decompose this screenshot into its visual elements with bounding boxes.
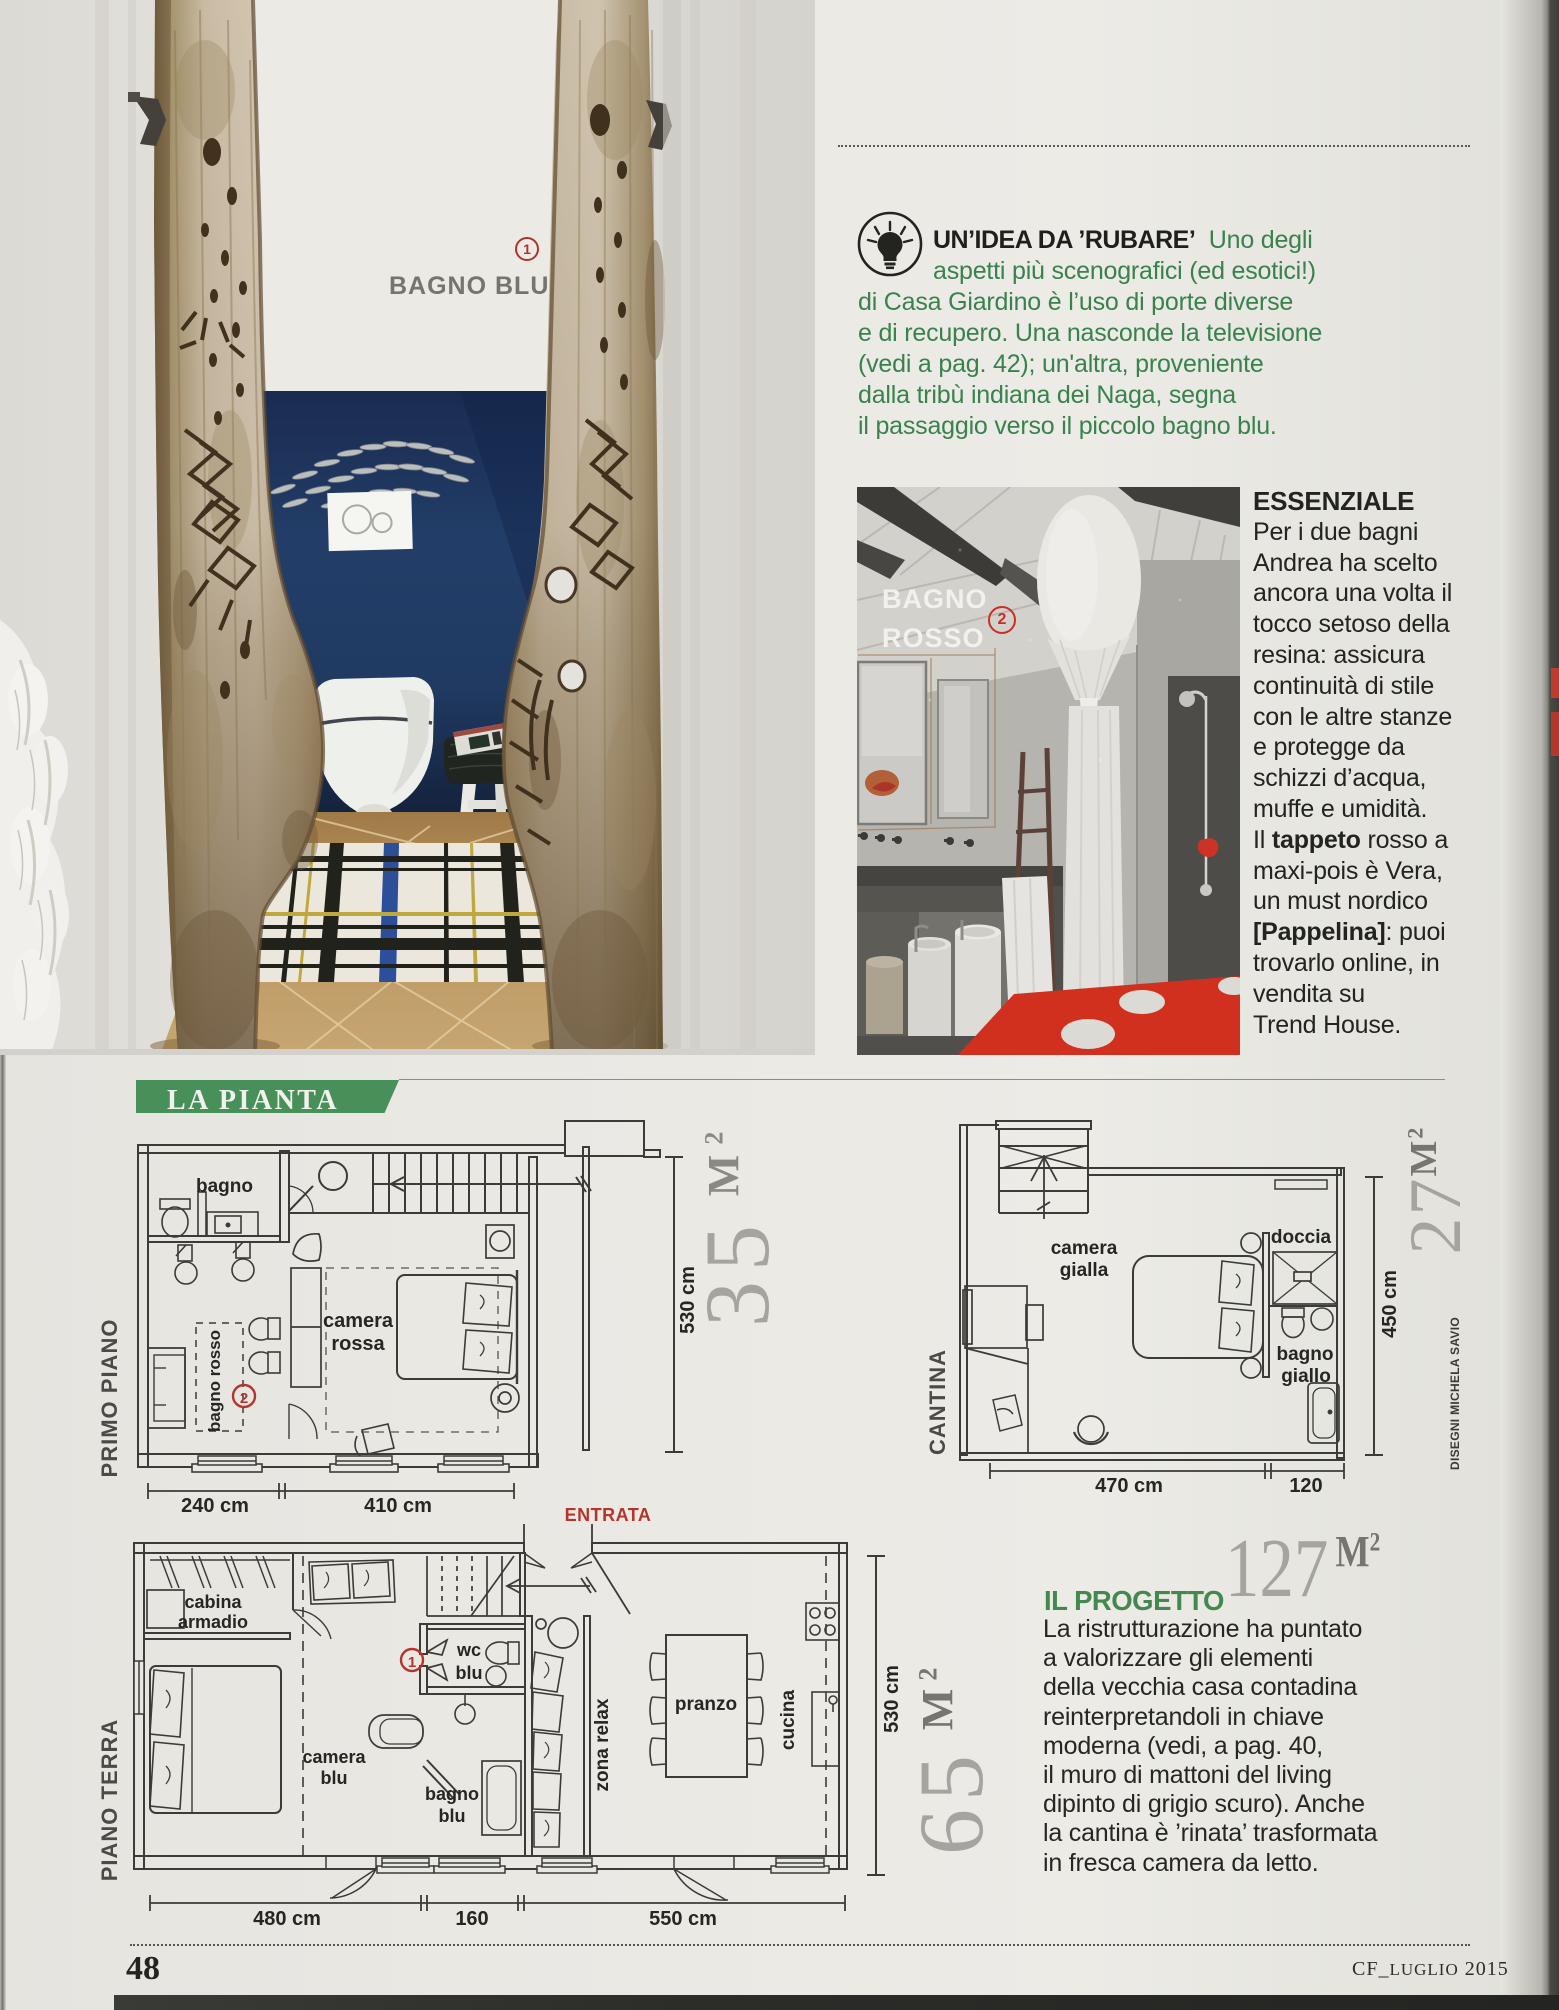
svg-text:camera: camera [1051, 1238, 1118, 1259]
svg-text:410 cm: 410 cm [364, 1495, 432, 1517]
svg-text:armadio: armadio [178, 1612, 248, 1632]
svg-text:blu: blu [321, 1768, 348, 1788]
svg-text:blu: blu [456, 1663, 483, 1683]
svg-text:bagno: bagno [1277, 1344, 1334, 1365]
svg-text:470 cm: 470 cm [1095, 1475, 1163, 1497]
svg-text:camera: camera [323, 1310, 394, 1332]
svg-text:cucina: cucina [778, 1689, 799, 1750]
svg-text:160: 160 [455, 1908, 488, 1930]
svg-text:1: 1 [408, 1654, 416, 1671]
svg-text:pranzo: pranzo [675, 1694, 737, 1715]
svg-text:rossa: rossa [331, 1333, 385, 1355]
svg-text:240 cm: 240 cm [181, 1495, 249, 1517]
svg-text:doccia: doccia [1271, 1227, 1332, 1248]
svg-text:450 cm: 450 cm [1379, 1270, 1401, 1338]
svg-text:wc: wc [456, 1640, 481, 1660]
svg-text:2: 2 [240, 1390, 248, 1407]
svg-text:zona relax: zona relax [592, 1698, 613, 1791]
svg-text:gialla: gialla [1060, 1260, 1109, 1281]
svg-text:cabina: cabina [184, 1592, 242, 1612]
svg-text:120: 120 [1289, 1475, 1322, 1497]
svg-text:480 cm: 480 cm [253, 1908, 321, 1930]
svg-text:blu: blu [439, 1806, 466, 1826]
svg-text:camera: camera [302, 1747, 366, 1767]
svg-text:550 cm: 550 cm [649, 1908, 717, 1930]
svg-text:bagno: bagno [196, 1176, 253, 1197]
svg-text:bagno: bagno [425, 1784, 479, 1804]
svg-text:giallo: giallo [1281, 1366, 1331, 1387]
svg-text:530 cm: 530 cm [881, 1665, 903, 1733]
svg-text:bagno rosso: bagno rosso [205, 1330, 224, 1432]
